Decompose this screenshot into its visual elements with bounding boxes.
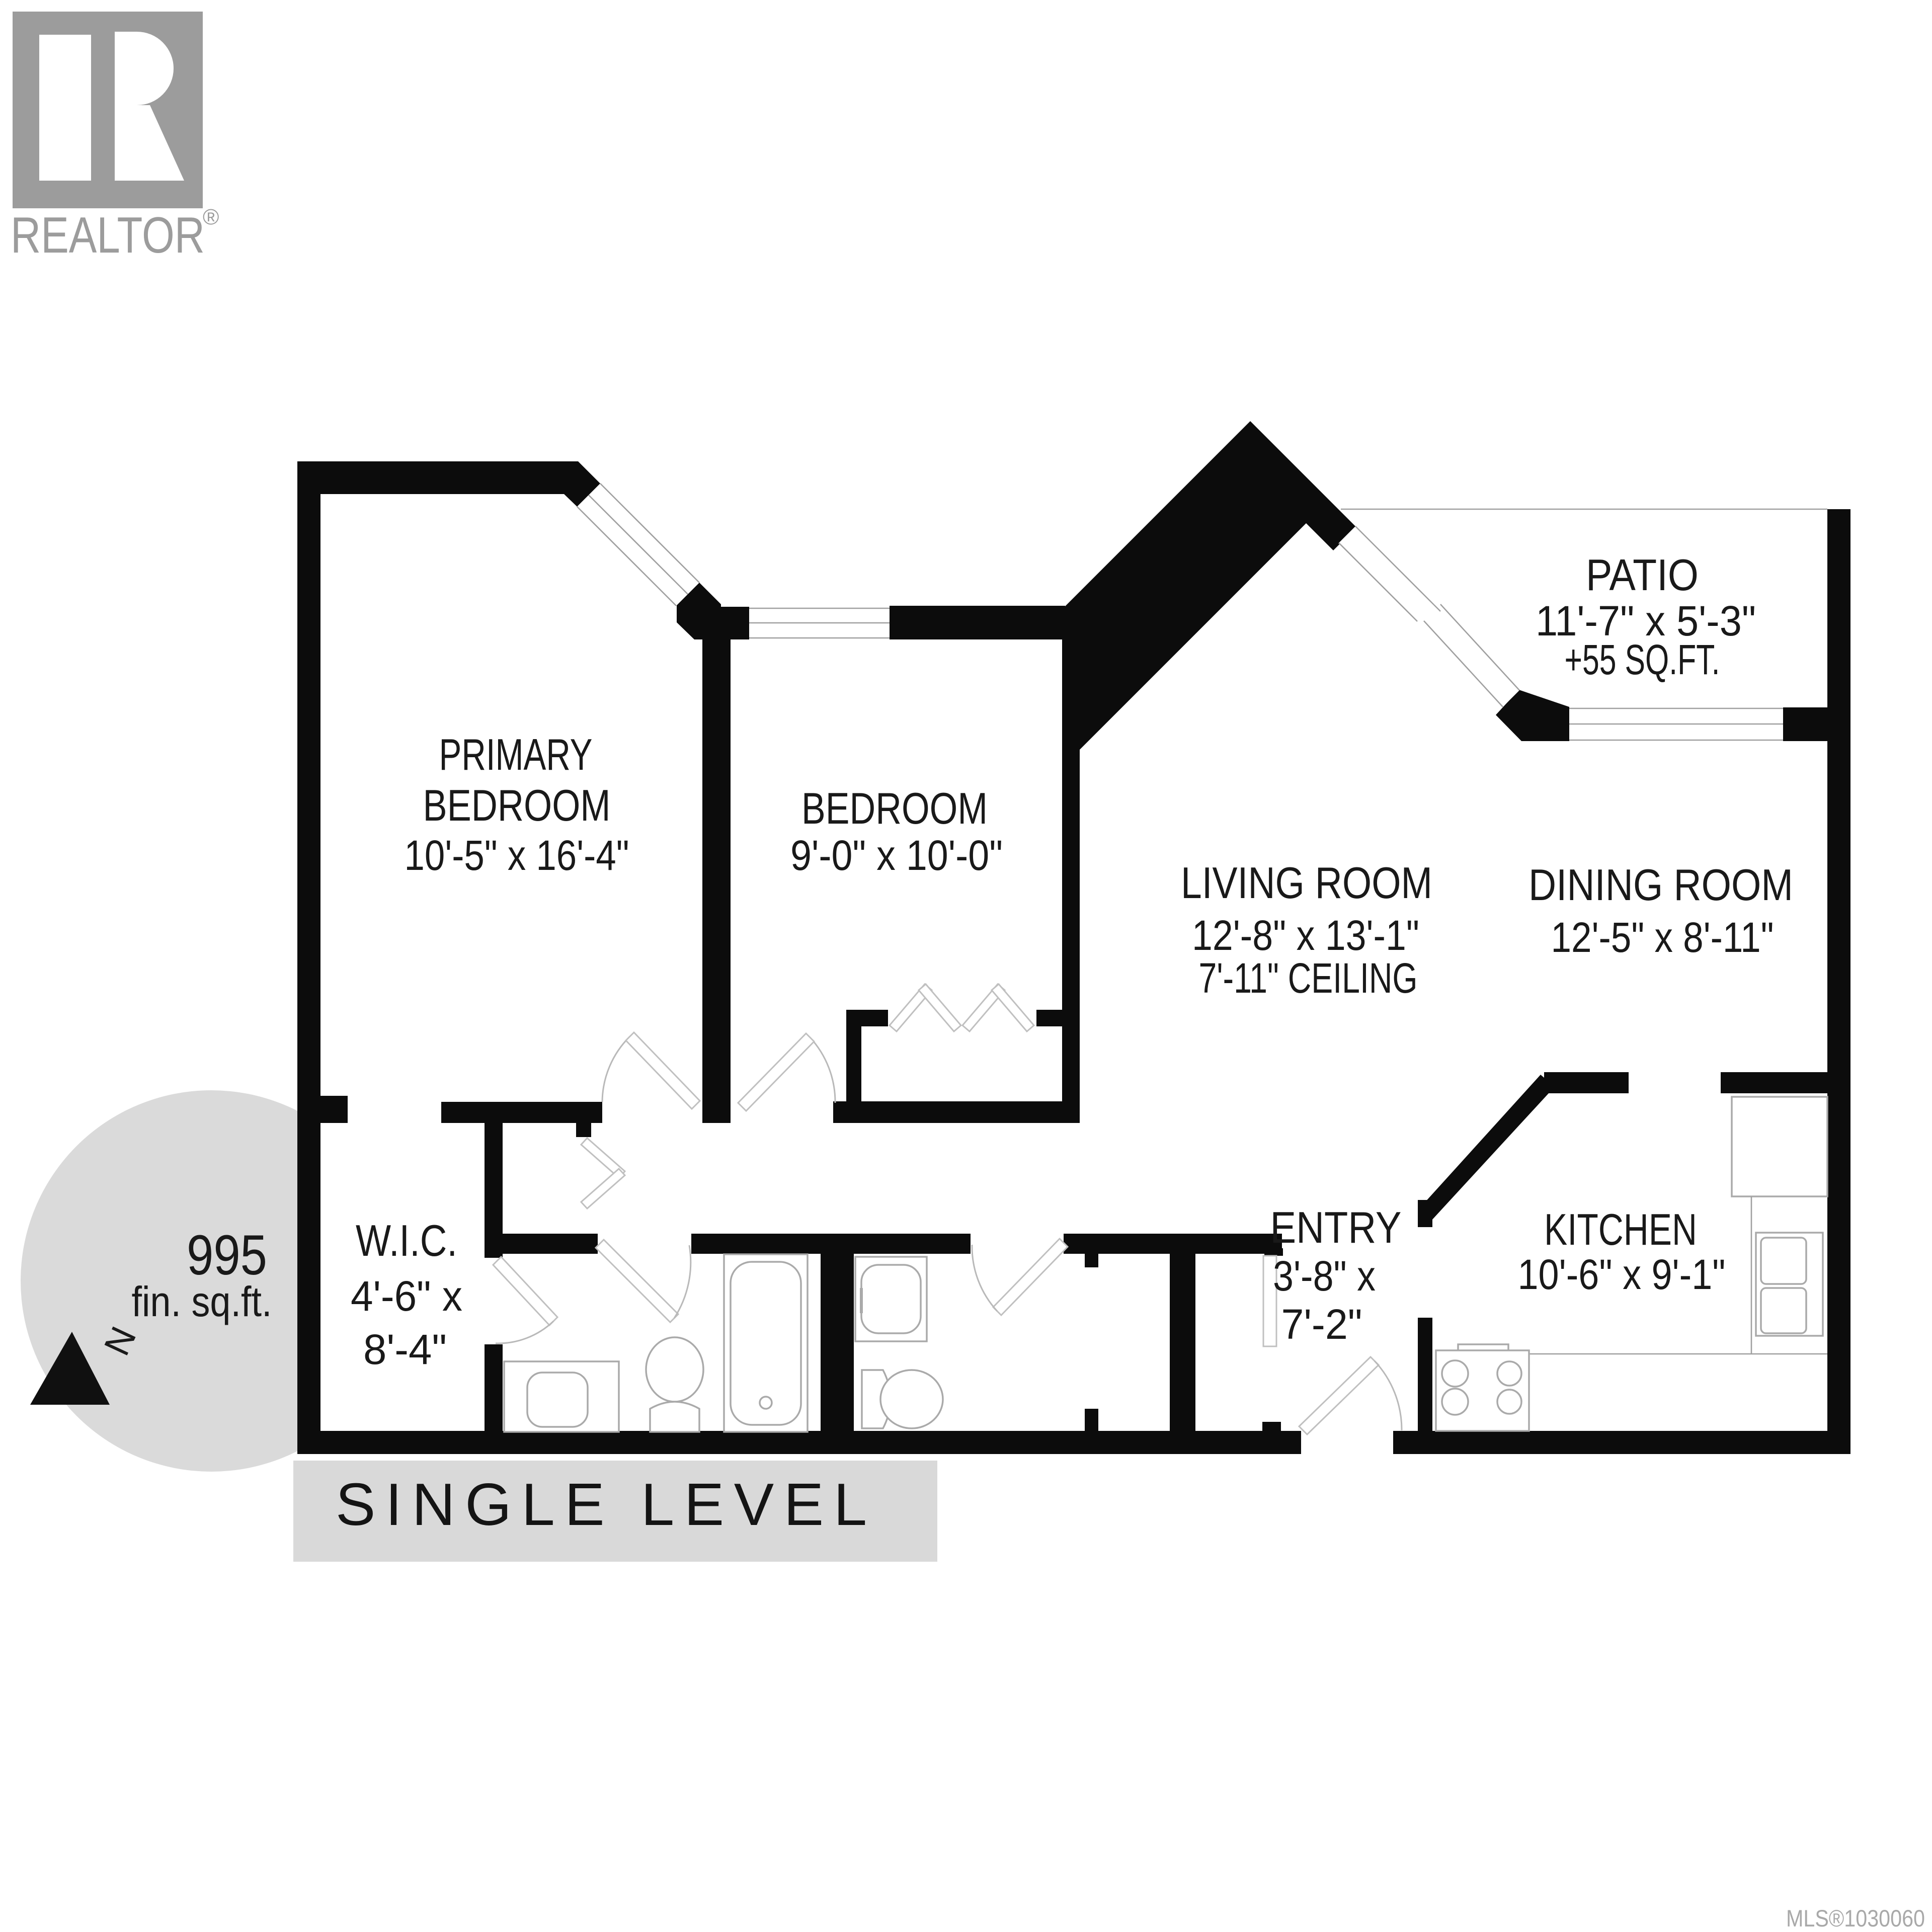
svg-text:3'-8" x: 3'-8" x <box>1273 1252 1376 1300</box>
svg-text:W.I.C.: W.I.C. <box>356 1216 457 1265</box>
svg-text:7'-11" CEILING: 7'-11" CEILING <box>1199 954 1418 1002</box>
svg-text:MLS®1030060: MLS®1030060 <box>1786 1905 1925 1931</box>
svg-text:8'-4": 8'-4" <box>363 1326 447 1373</box>
svg-text:BEDROOM: BEDROOM <box>423 780 611 830</box>
svg-text:9'-0" x 10'-0": 9'-0" x 10'-0" <box>790 832 1003 879</box>
svg-text:DINING ROOM: DINING ROOM <box>1528 860 1793 910</box>
svg-text:+55 SQ.FT.: +55 SQ.FT. <box>1565 636 1720 683</box>
svg-text:fin. sq.ft.: fin. sq.ft. <box>132 1278 272 1325</box>
svg-text:SINGLE LEVEL: SINGLE LEVEL <box>336 1471 867 1538</box>
svg-text:REALTOR: REALTOR <box>11 207 205 264</box>
svg-text:PATIO: PATIO <box>1586 550 1699 600</box>
svg-text:10'-5" x 16'-4": 10'-5" x 16'-4" <box>405 832 629 879</box>
svg-text:ENTRY: ENTRY <box>1270 1202 1402 1252</box>
svg-text:LIVING ROOM: LIVING ROOM <box>1181 858 1432 908</box>
svg-text:10'-6" x 9'-1": 10'-6" x 9'-1" <box>1518 1251 1726 1298</box>
svg-text:12'-5" x 8'-11": 12'-5" x 8'-11" <box>1551 914 1774 961</box>
svg-text:12'-8" x 13'-1": 12'-8" x 13'-1" <box>1192 912 1419 959</box>
svg-text:PRIMARY: PRIMARY <box>439 730 593 779</box>
svg-text:BEDROOM: BEDROOM <box>801 783 988 833</box>
svg-text:7'-2": 7'-2" <box>1281 1301 1362 1348</box>
svg-text:995: 995 <box>187 1224 267 1286</box>
svg-text:4'-6" x: 4'-6" x <box>351 1272 462 1320</box>
svg-text:KITCHEN: KITCHEN <box>1544 1204 1697 1254</box>
svg-text:®: ® <box>203 205 219 229</box>
